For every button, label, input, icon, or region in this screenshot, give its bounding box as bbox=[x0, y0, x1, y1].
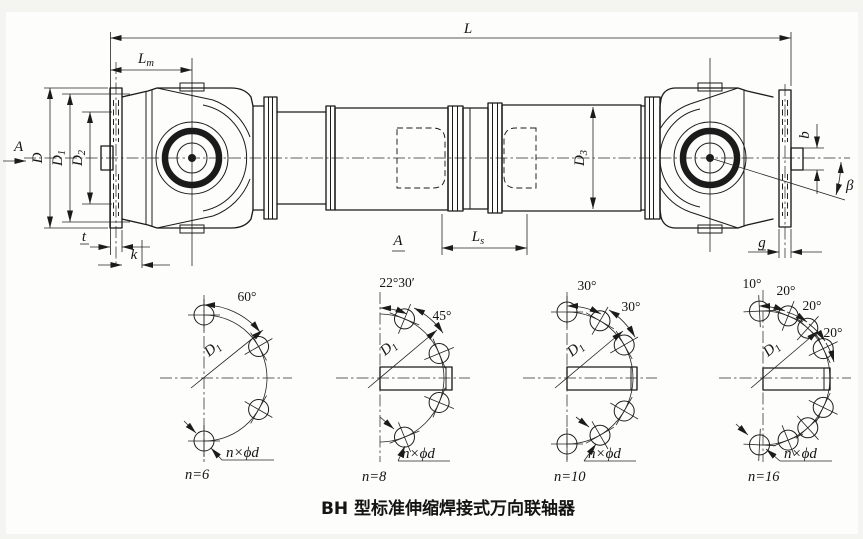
left-bearing bbox=[156, 122, 228, 194]
section-arrow-label: A bbox=[13, 139, 24, 155]
dim-b: b bbox=[797, 131, 813, 139]
section-mark-label: A bbox=[392, 233, 403, 249]
n-count-label: n=16 bbox=[748, 469, 780, 485]
dim-g: g bbox=[758, 235, 766, 251]
angle-label: 20° bbox=[803, 298, 822, 313]
angle-label: 20° bbox=[824, 325, 843, 340]
n-count-label: n=8 bbox=[362, 469, 387, 485]
engineering-drawing-page: L Lm A D D1 D2 t bbox=[0, 0, 863, 539]
dim-beta: β bbox=[845, 178, 854, 194]
holes-callout: n×ϕd bbox=[226, 445, 259, 461]
holes-callout: n×ϕd bbox=[402, 446, 435, 462]
dim-k: k bbox=[131, 247, 138, 263]
dim-L: L bbox=[463, 21, 472, 37]
angle-label: 60° bbox=[238, 289, 257, 304]
angle-label: 30° bbox=[578, 278, 597, 293]
angle-label: 45° bbox=[433, 308, 452, 323]
holes-callout: n×ϕd bbox=[784, 446, 817, 462]
angle-label: 30° bbox=[622, 299, 641, 314]
coupling-drawing: L Lm A D D1 D2 t bbox=[0, 0, 863, 539]
n-count-label: n=10 bbox=[554, 469, 586, 485]
angle-label: 20° bbox=[777, 283, 796, 298]
dim-D: D bbox=[30, 152, 46, 164]
angle-label: 10° bbox=[743, 276, 762, 291]
angle-label: 22°30′ bbox=[379, 275, 414, 290]
n-count-label: n=6 bbox=[185, 467, 210, 483]
figure-caption: BH 型标准伸缩焊接式万向联轴器 bbox=[321, 498, 576, 519]
